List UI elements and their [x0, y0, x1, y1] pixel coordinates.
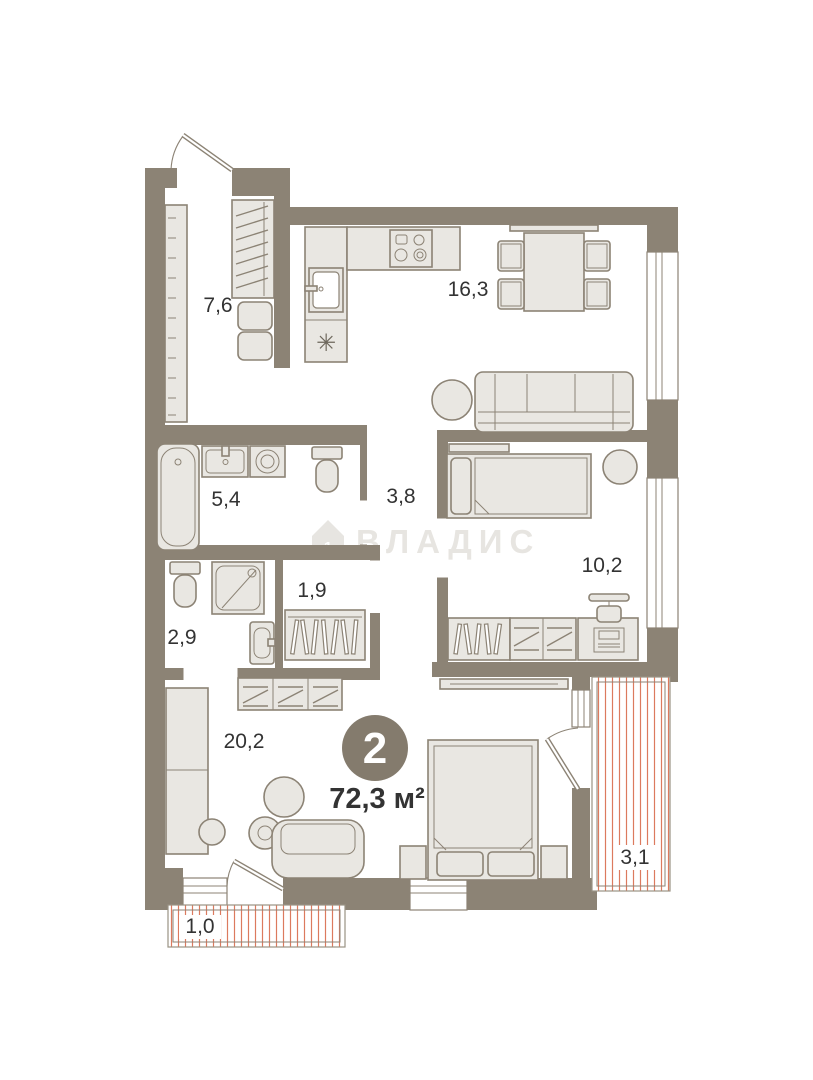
room-label-loggia-bottom: 1,0: [185, 915, 214, 938]
bedroom-shelf: [449, 444, 509, 452]
single-bed: [447, 454, 591, 518]
bedroom-window: [647, 478, 678, 628]
bathroom-sink: [202, 446, 248, 477]
watermark-brand: ВЛАДИС: [356, 523, 540, 560]
entry-wardrobe: [232, 200, 274, 298]
side-table: [199, 819, 225, 845]
kitchen-dishwasher: ✳: [316, 329, 336, 357]
room-label-wc: 2,9: [167, 626, 196, 649]
bedroom-shelving: [510, 618, 576, 660]
kitchen-sink: [305, 268, 343, 312]
toilet: [312, 447, 342, 492]
coffee-table: [432, 380, 472, 420]
washing-machine: [250, 446, 285, 477]
pouf: [603, 450, 637, 484]
pouf-round: [264, 777, 304, 817]
room-label-living-bedroom: 20,2: [224, 730, 265, 753]
nightstand-right: [541, 846, 567, 879]
tv-console: [440, 679, 568, 689]
bedroom-wardrobe: [448, 618, 510, 660]
total-area-label: 72,3 м²: [329, 783, 425, 815]
svg-text:✳: ✳: [316, 329, 336, 357]
wall-console: [510, 225, 598, 231]
room-label-bedroom: 10,2: [582, 554, 623, 577]
room-label-entry-hall: 7,6: [203, 294, 232, 317]
bathtub: [157, 444, 199, 550]
sofa: [475, 372, 633, 432]
shower-cabin: [212, 562, 264, 614]
loggia-door-window: [572, 690, 590, 727]
room-label-kitchen-living: 16,3: [448, 278, 489, 301]
room-label-bathroom: 5,4: [211, 488, 241, 511]
ventilation-shaft: [165, 205, 187, 422]
floor-plan: 1 ВЛАДИС: [0, 0, 813, 1080]
loveseat: [272, 820, 364, 878]
south-window-mid: [410, 878, 467, 910]
desk: [578, 618, 638, 660]
badge-rooms-count: 2: [363, 724, 387, 773]
room-label-loggia-right: 3,1: [620, 846, 649, 869]
dresser: [238, 678, 342, 710]
dining-table: [524, 233, 584, 311]
wc-sink: [250, 622, 275, 664]
room-label-corridor: 3,8: [386, 485, 415, 508]
nightstand-left: [400, 846, 426, 879]
wc-toilet: [170, 562, 200, 607]
double-bed: [428, 740, 538, 880]
closet-wardrobe: [285, 610, 365, 660]
living-room-window: [647, 252, 678, 400]
kitchen-stove: [390, 230, 432, 267]
room-label-closet: 1,9: [297, 579, 326, 602]
